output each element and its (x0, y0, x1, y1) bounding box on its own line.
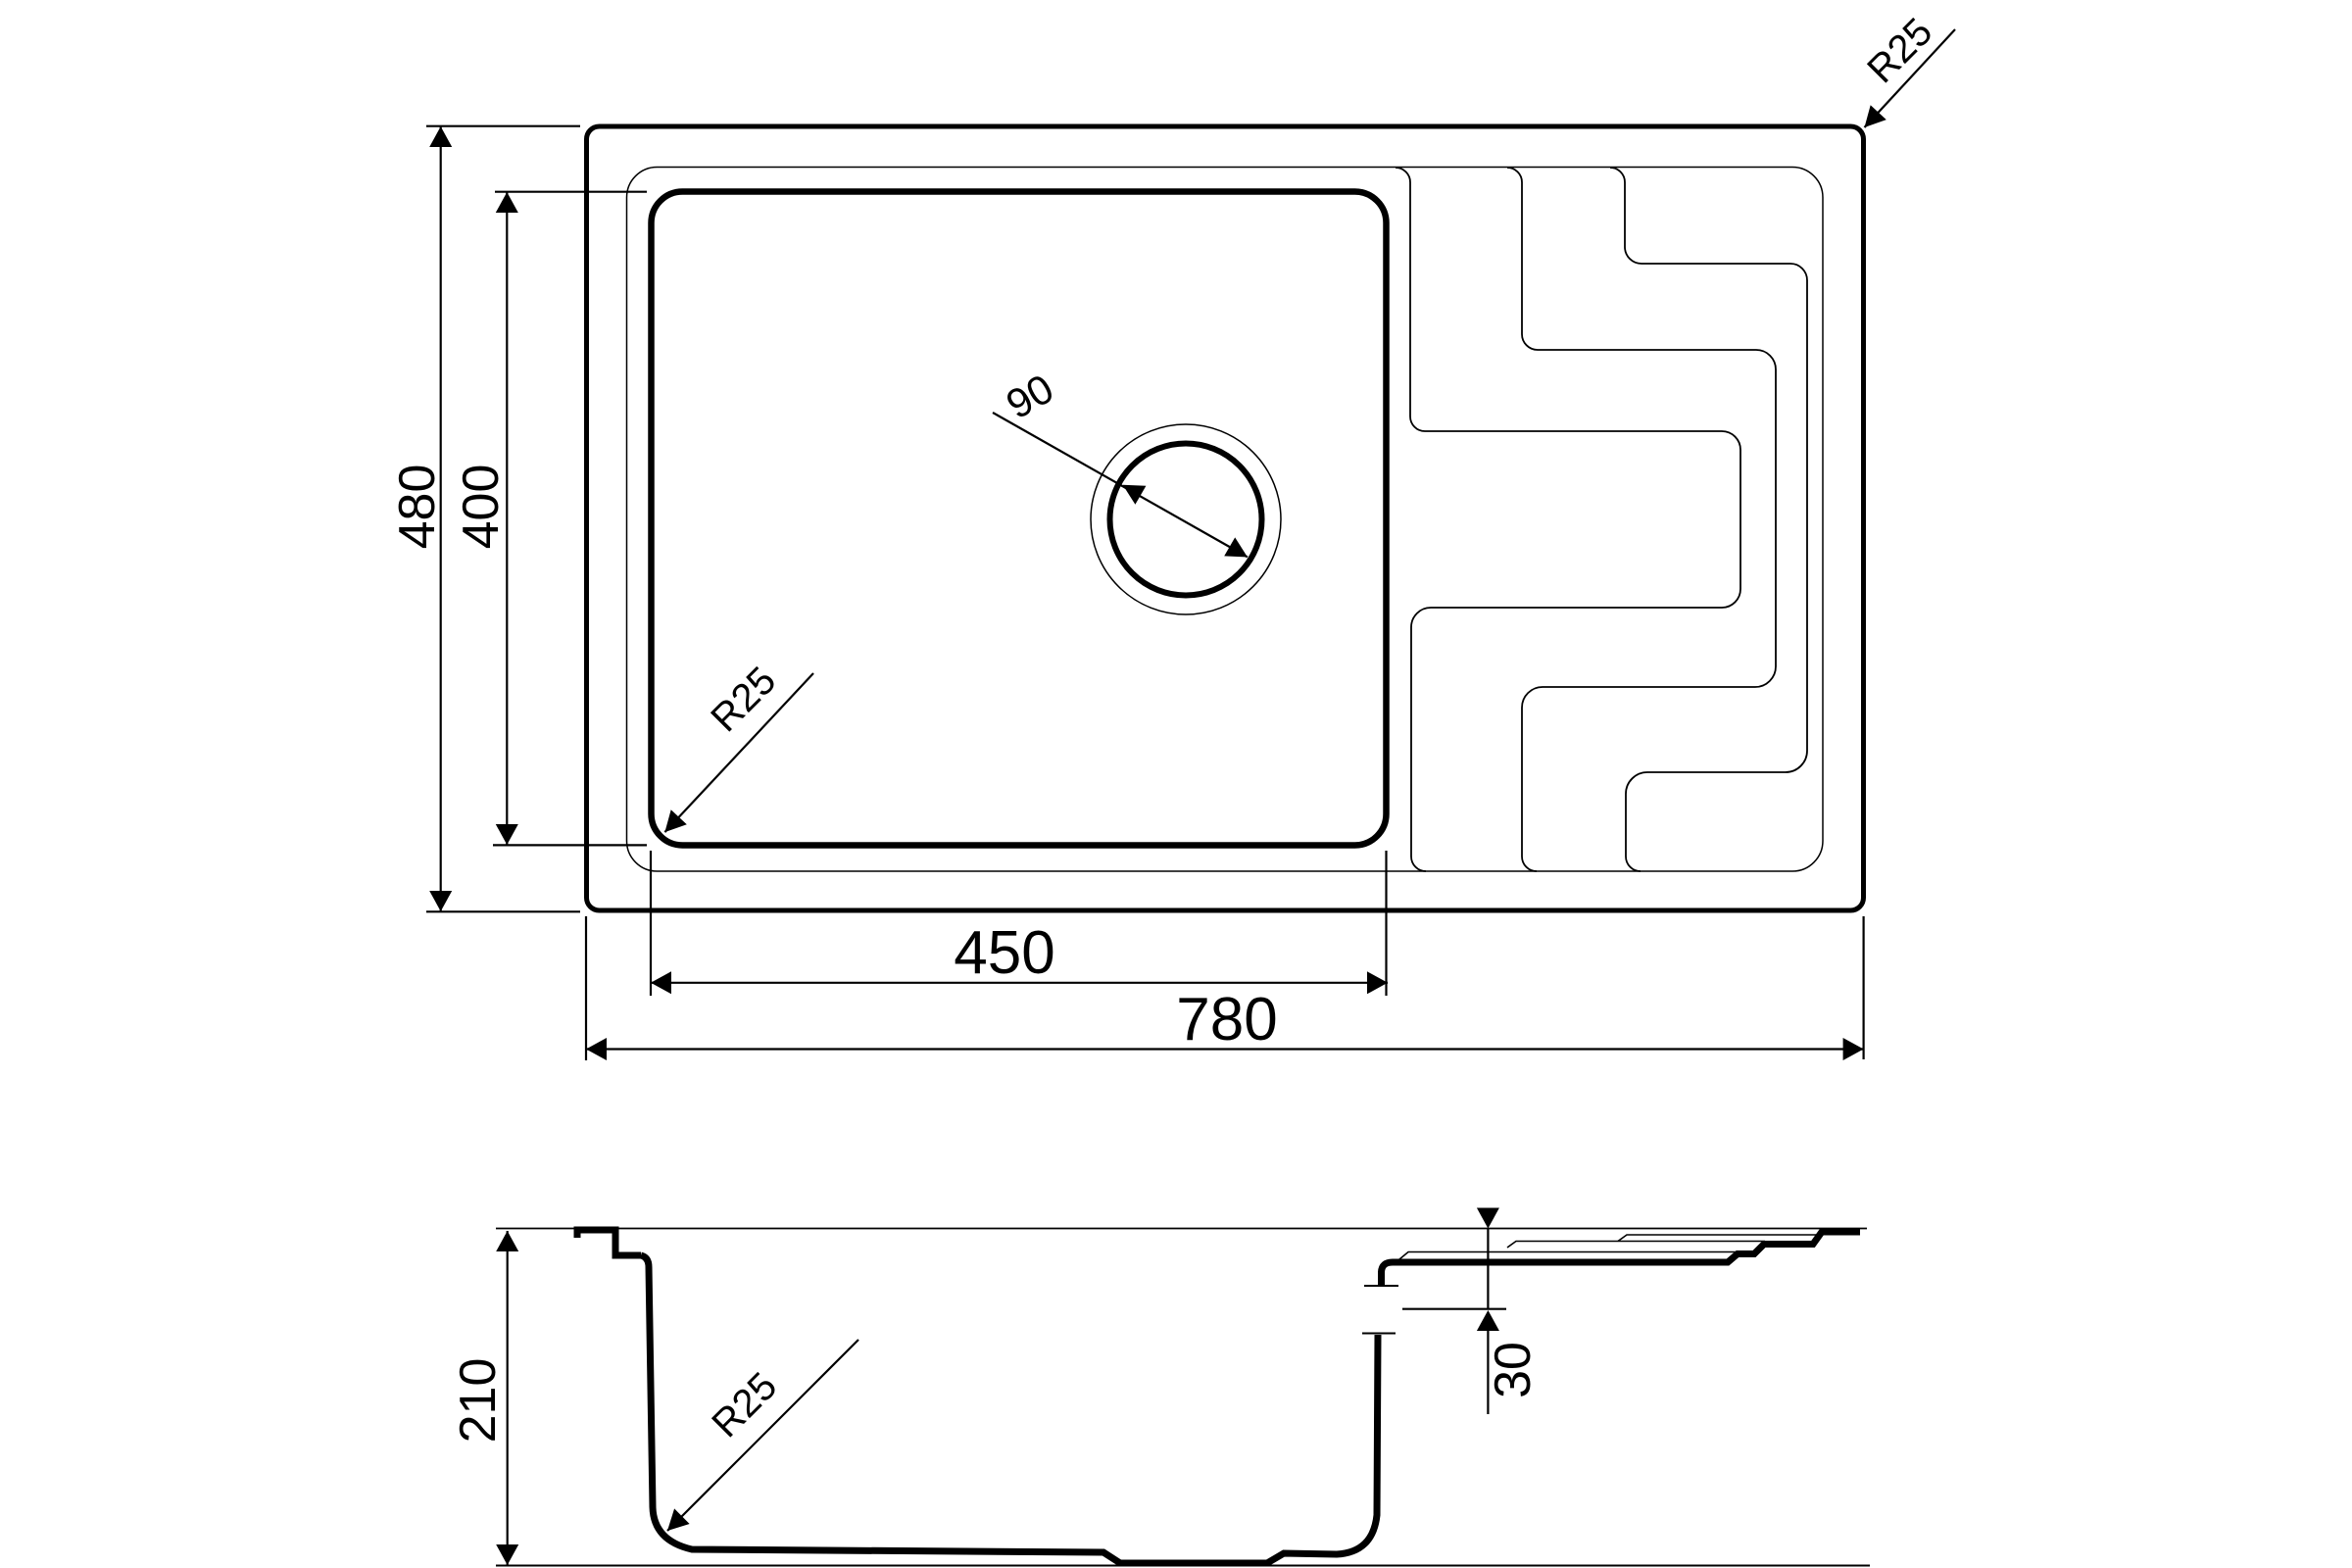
svg-text:480: 480 (389, 465, 446, 550)
svg-text:30: 30 (1485, 1342, 1542, 1398)
svg-text:450: 450 (954, 919, 1054, 987)
svg-text:400: 400 (453, 465, 510, 550)
svg-text:210: 210 (450, 1358, 507, 1444)
svg-text:780: 780 (1176, 986, 1277, 1053)
